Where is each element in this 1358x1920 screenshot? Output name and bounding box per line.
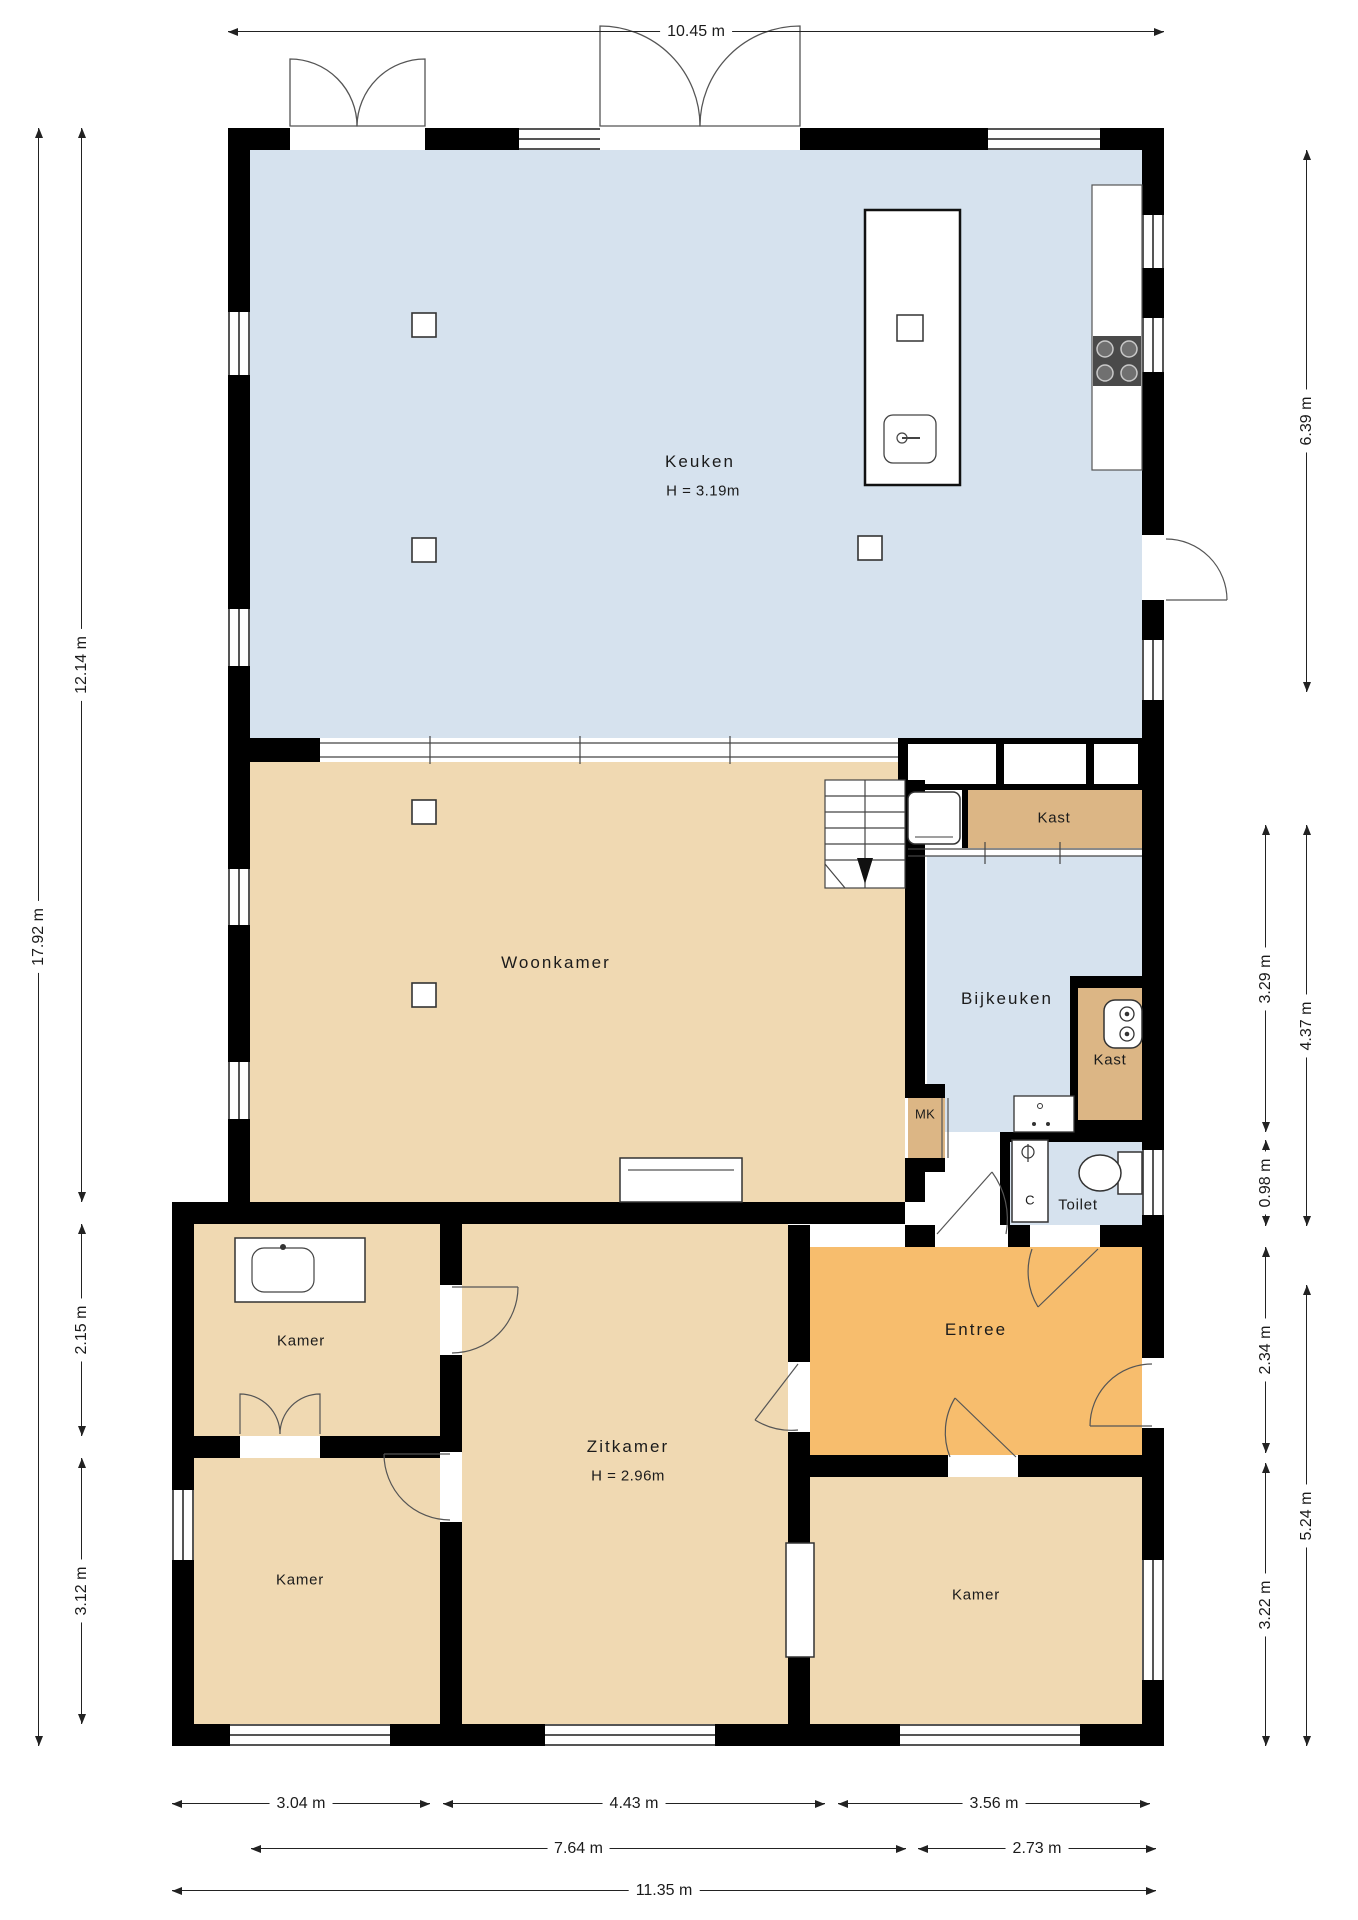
room-height-keuken: H = 3.19m <box>666 483 740 500</box>
double-door-icon <box>290 59 425 126</box>
boiler-icon <box>1104 1000 1142 1048</box>
dim-right-entree: 2.34 m <box>1265 1247 1266 1453</box>
room-label-mk: MK <box>915 1107 935 1122</box>
room-label-zitkamer: Zitkamer <box>587 1437 669 1457</box>
dim-left-total: 17.92 m <box>38 128 39 1746</box>
dim-right-bijkeuken: 3.29 m <box>1265 825 1266 1132</box>
dim-top-width: 10.45 m <box>228 31 1164 32</box>
pillar-icon <box>412 313 882 1007</box>
stove-icon <box>1092 185 1142 470</box>
room-label-kamer-rechts: Kamer <box>952 1587 1000 1604</box>
room-height-zitkamer: H = 2.96m <box>591 1468 665 1485</box>
room-label-kast-klein: Kast <box>1093 1052 1126 1069</box>
shower-label: C <box>1025 1193 1035 1208</box>
dim-bottom-rechts: 2.73 m <box>918 1848 1156 1849</box>
shower-unit-icon <box>1012 1140 1048 1222</box>
room-label-bijkeuken: Bijkeuken <box>961 989 1053 1009</box>
sliding-door-track <box>908 842 1142 864</box>
room-label-woonkamer: Woonkamer <box>501 953 611 973</box>
fixtures-layer <box>0 0 1358 1920</box>
room-label-keuken: Keuken <box>665 452 735 472</box>
sliding-door-track <box>320 736 898 764</box>
door-swing-icon <box>240 539 1227 1520</box>
dim-bottom-links-zitkamer: 7.64 m <box>251 1848 906 1849</box>
stairs-icon <box>825 780 905 888</box>
floor-plan: Keuken H = 3.19m Woonkamer Kast Bijkeuke… <box>0 0 1358 1920</box>
cupboard-icon <box>786 1543 814 1657</box>
dim-left-kamer-onder: 3.12 m <box>81 1458 82 1724</box>
room-label-kamer-links-onder: Kamer <box>276 1572 324 1589</box>
dim-left-upper: 12.14 m <box>81 128 82 1202</box>
dim-right-entree-kamer: 5.24 m <box>1306 1285 1307 1746</box>
dim-right-toilet: 0.98 m <box>1265 1140 1266 1226</box>
dim-right-kamer: 3.22 m <box>1265 1463 1266 1746</box>
room-label-toilet: Toilet <box>1058 1197 1098 1214</box>
kitchen-island-icon <box>865 210 960 485</box>
sideboard-icon <box>620 1158 742 1202</box>
utility-sink-icon <box>1014 1096 1074 1132</box>
room-label-kamer-links-boven: Kamer <box>277 1333 325 1350</box>
dim-bottom-zitkamer: 4.43 m <box>443 1803 825 1804</box>
dim-bottom-kamers-links: 3.04 m <box>172 1803 430 1804</box>
room-label-kast-hal: Kast <box>1037 810 1070 827</box>
vanity-sink-icon <box>235 1238 365 1302</box>
dim-bottom-totaal: 11.35 m <box>172 1890 1156 1891</box>
dim-left-kamer-boven: 2.15 m <box>81 1224 82 1436</box>
dim-right-bijkeuken-toilet: 4.37 m <box>1306 825 1307 1226</box>
washing-machine-icon <box>908 792 960 844</box>
toilet-icon <box>1079 1152 1142 1194</box>
dim-bottom-kamer-rechts: 3.56 m <box>838 1803 1150 1804</box>
room-label-entree: Entree <box>945 1320 1007 1340</box>
dim-right-keuken: 6.39 m <box>1306 150 1307 692</box>
double-door-icon <box>600 26 800 126</box>
